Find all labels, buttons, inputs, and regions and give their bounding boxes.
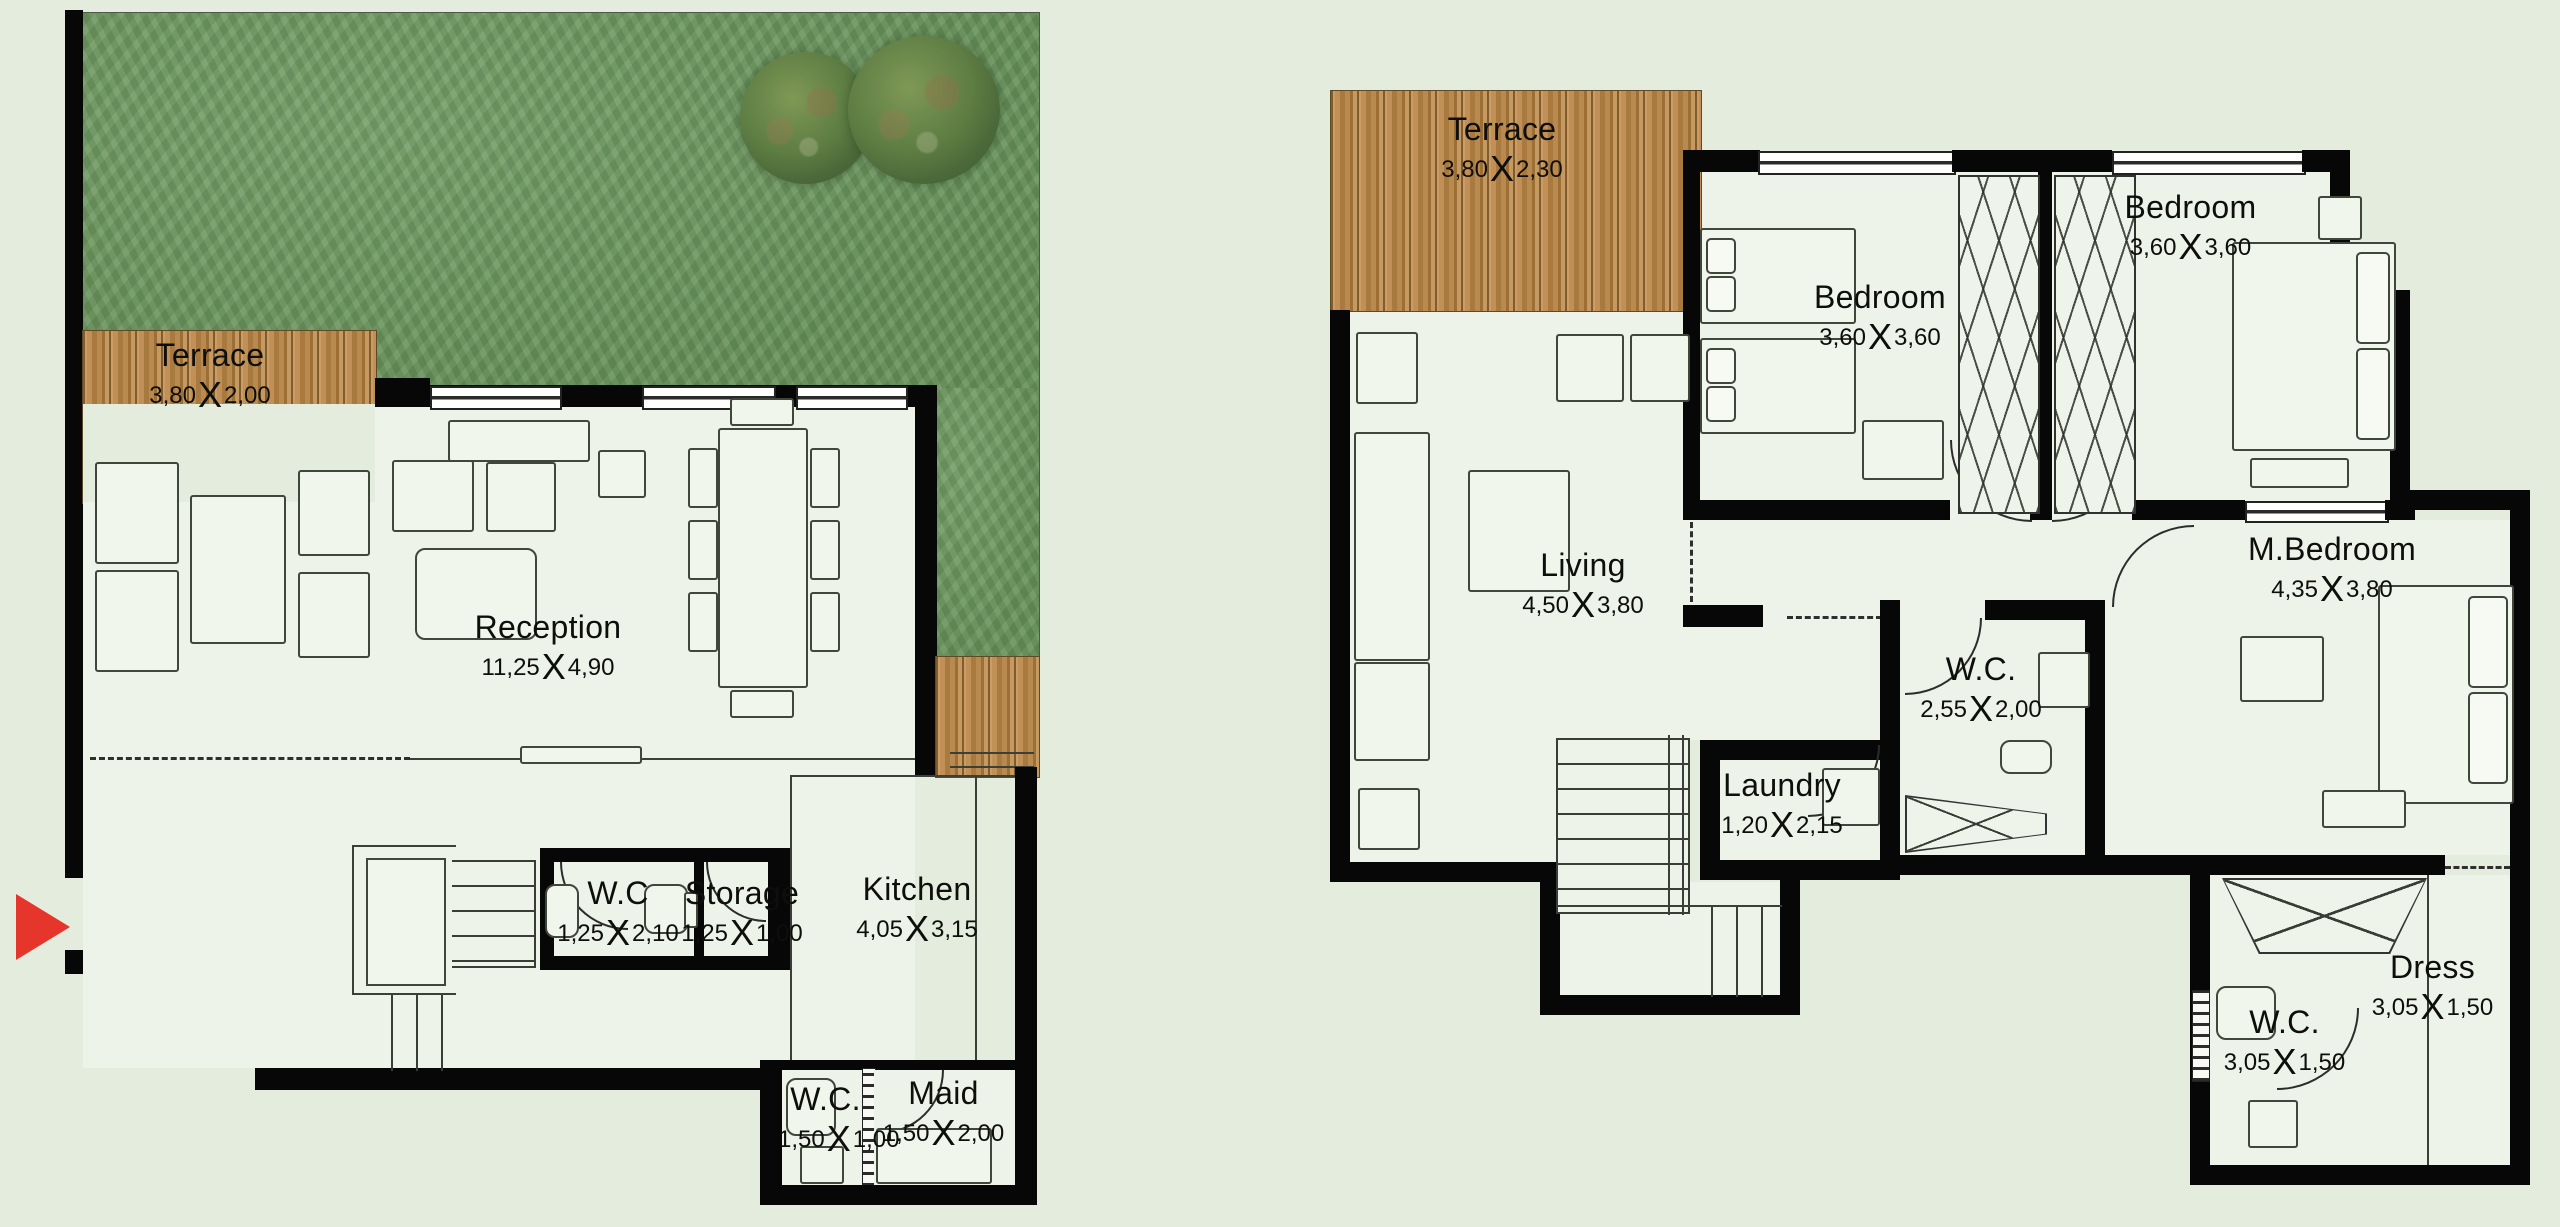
side-table (598, 450, 646, 498)
wall (2105, 855, 2445, 875)
stairs-treads[interactable] (1688, 905, 1782, 997)
wall (65, 10, 83, 878)
toilet (2248, 1100, 2298, 1148)
tv-unit (520, 746, 642, 764)
wall (1330, 862, 1560, 882)
room-label-terrace-ground: Terrace 3,80X2,00 (100, 338, 320, 415)
dining-chair (810, 520, 840, 580)
wall (2038, 172, 2052, 520)
wall (915, 385, 937, 775)
pillow (2468, 692, 2508, 784)
wall (540, 956, 790, 970)
sofa (1354, 432, 1430, 661)
sofa (95, 570, 179, 672)
bench (2322, 790, 2406, 828)
partition-hatch (2192, 990, 2210, 1082)
wall (1700, 860, 1900, 880)
deck-bench-line (950, 752, 1034, 754)
wall (1683, 500, 1950, 520)
side-table (1358, 788, 1420, 850)
desk (1862, 420, 1944, 480)
room-label-wc2-first: W.C. 3,05X1,50 (2212, 1005, 2357, 1082)
room-label-reception: Reception 11,25X4,90 (448, 610, 648, 687)
wall (1330, 310, 1350, 882)
dining-chair (688, 448, 718, 508)
dining-chair (730, 690, 794, 718)
opening-dashed-line (1690, 522, 1693, 602)
dining-table (718, 428, 808, 688)
pillow (2468, 596, 2508, 688)
dining-chair (688, 592, 718, 652)
armchair (1630, 334, 1690, 402)
room-label-dress: Dress 3,05X1,50 (2360, 950, 2505, 1027)
wall (1952, 150, 2112, 172)
pillow (1706, 276, 1736, 312)
pillow (1706, 238, 1736, 274)
sofa (95, 462, 179, 564)
pillow (1706, 348, 1736, 384)
wall (1685, 150, 1760, 172)
armchair (486, 462, 556, 532)
wall (760, 1185, 1037, 1205)
stair-rail (1668, 735, 1670, 915)
stairs-treads[interactable] (368, 995, 446, 1071)
room-label-terrace-first: Terrace 3,80X2,30 (1392, 112, 1612, 189)
coffee-table (190, 495, 286, 644)
stair-rail (1682, 735, 1684, 915)
room-label-storage: Storage 1,25X1,00 (672, 876, 812, 953)
room-label-bedroom2: Bedroom 3,60X3,60 (2098, 190, 2283, 267)
room-label-mbedroom: M.Bedroom 4,35X3,80 (2232, 532, 2432, 609)
pillow (2356, 252, 2390, 344)
wall (1880, 600, 1900, 875)
nightstand (2318, 196, 2362, 240)
room-label-living: Living 4,50X3,80 (1494, 548, 1672, 625)
room-label-bedroom1: Bedroom 3,60X3,60 (1790, 280, 1970, 357)
room-label-wc2-ground: W.C. 1,50X1,00 (778, 1082, 873, 1159)
wall (1015, 767, 1037, 1205)
console-table (448, 420, 590, 462)
opening-dashed-line (90, 757, 410, 760)
stair-edge (352, 845, 354, 995)
dining-chair (730, 398, 794, 426)
dining-chair (810, 592, 840, 652)
floor-plan-page: { "sep": { "x": "X" }, "colors": { "page… (0, 0, 2560, 1227)
room-label-kitchen: Kitchen 4,05X3,15 (842, 872, 992, 949)
wall (255, 1068, 790, 1090)
toilet (2000, 740, 2052, 774)
stair-edge (352, 845, 456, 847)
dining-chair (688, 520, 718, 580)
wall (760, 1060, 1017, 1070)
wall (540, 848, 790, 862)
dining-chair (810, 448, 840, 508)
opening-dashed-line (2445, 866, 2510, 869)
garden-grass-strip (935, 388, 1040, 657)
stair-landing[interactable] (366, 858, 446, 986)
wall (2085, 600, 2105, 875)
entrance-arrow-icon (16, 894, 70, 960)
armchair (392, 460, 474, 532)
stair-edge (1556, 905, 1782, 907)
wall (2190, 1165, 2530, 1185)
window (2112, 151, 2306, 175)
tree (848, 36, 1000, 184)
room-label-wc-ground: W.C 1,25X2,10 (548, 876, 688, 953)
window (796, 386, 908, 410)
room-label-wc-first: W.C. 2,55X2,00 (1892, 652, 2070, 729)
wardrobe (1958, 175, 2040, 514)
window (2245, 501, 2389, 523)
bench (2250, 458, 2349, 488)
wall (2132, 500, 2245, 520)
dresser (2240, 636, 2324, 702)
window (1758, 151, 1956, 175)
chaise (1354, 662, 1430, 761)
kitchen-boundary-line (790, 775, 1015, 777)
window (430, 386, 562, 410)
wall (1540, 995, 1800, 1015)
wall (1780, 875, 1800, 1015)
opening-dashed-line (1787, 616, 1882, 619)
room-label-maid: Maid 1,50X2,00 (876, 1076, 1011, 1153)
wall (1683, 605, 1763, 627)
wall (2385, 500, 2415, 520)
pillow (1706, 386, 1736, 422)
room-label-laundry: Laundry 1,20X2,15 (1692, 768, 1872, 845)
stairs-treads[interactable] (452, 860, 536, 968)
armchair (298, 572, 370, 658)
floor-line (410, 758, 915, 760)
pillow (2356, 348, 2390, 440)
armchair (1556, 334, 1624, 402)
armchair (1356, 332, 1418, 404)
armchair (298, 470, 370, 556)
side-deck (935, 656, 1040, 778)
wall (1880, 855, 2105, 875)
